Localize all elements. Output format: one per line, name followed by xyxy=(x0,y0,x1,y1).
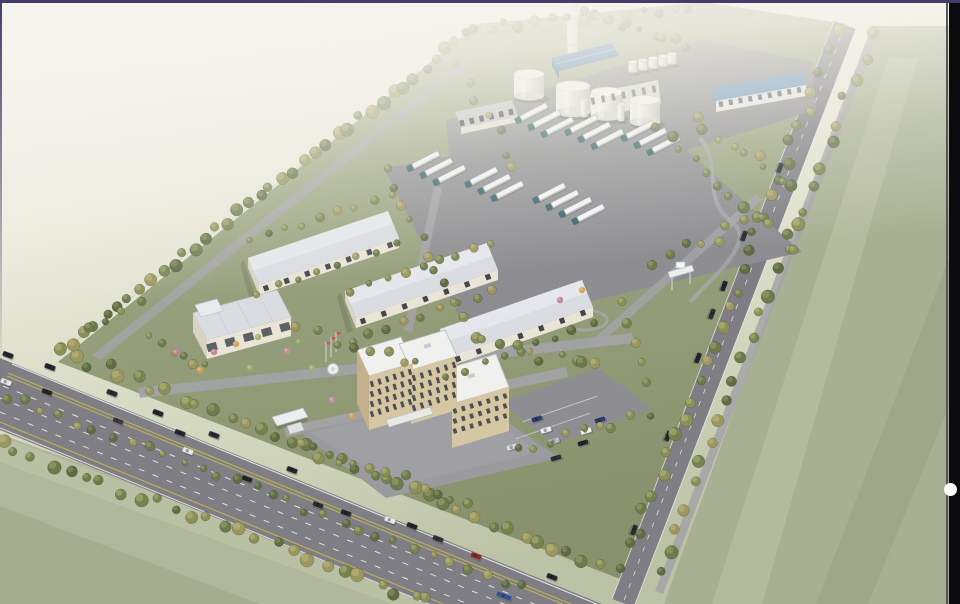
rendering-canvas xyxy=(0,0,960,604)
frame-border-left xyxy=(0,0,2,380)
white-semicircle-marker xyxy=(944,483,957,496)
frame-strip-right xyxy=(949,3,960,604)
atmospheric-haze xyxy=(0,0,960,604)
frame-border-top xyxy=(0,0,960,3)
aerial-rendering xyxy=(0,0,960,604)
frame-edge-line xyxy=(946,3,948,604)
